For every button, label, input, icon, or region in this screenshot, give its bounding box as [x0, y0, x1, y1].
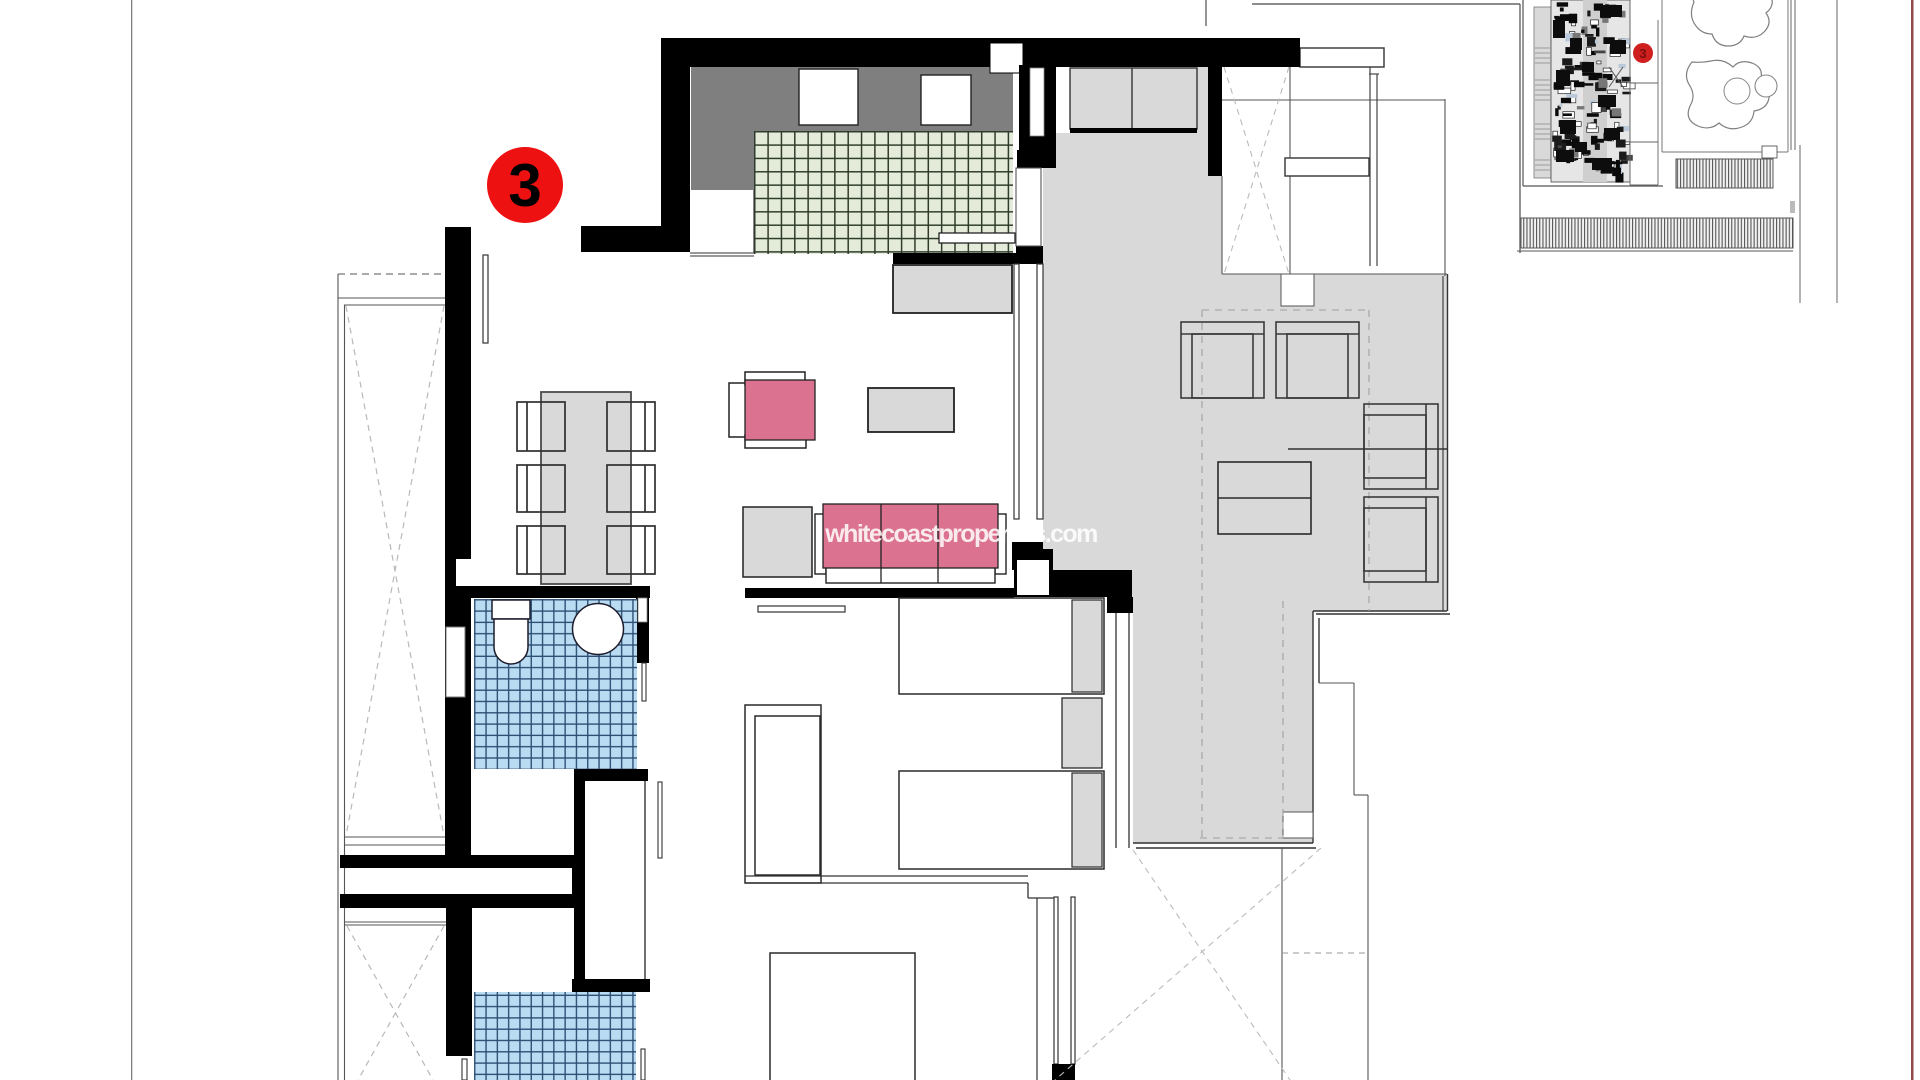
svg-text:3: 3 — [508, 152, 541, 219]
svg-text:whitecoastproperties.com: whitecoastproperties.com — [824, 520, 1097, 548]
svg-text:3: 3 — [1639, 46, 1646, 61]
